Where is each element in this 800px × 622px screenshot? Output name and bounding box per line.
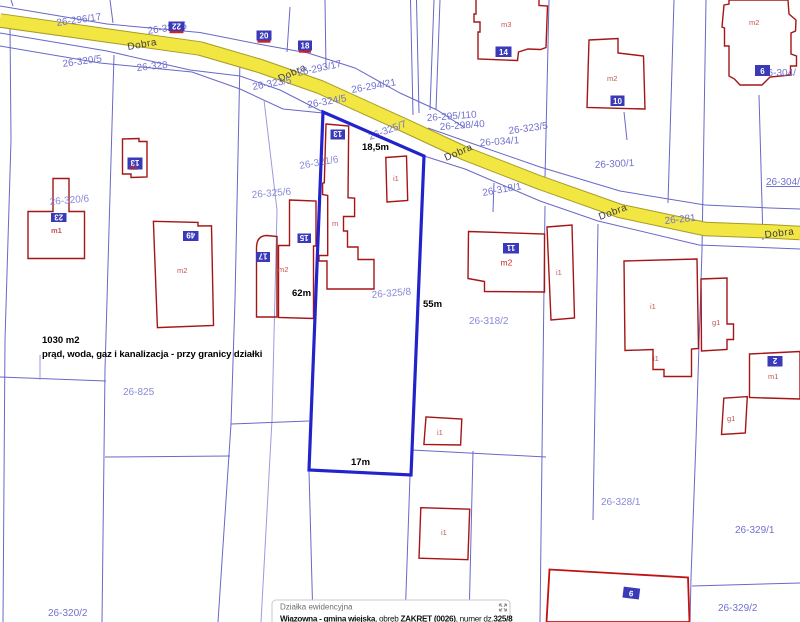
svg-text:49: 49 [186, 231, 195, 240]
svg-text:10: 10 [613, 97, 622, 106]
svg-text:i1: i1 [653, 354, 659, 363]
svg-text:1030 m2: 1030 m2 [42, 335, 80, 346]
svg-text:22: 22 [172, 21, 181, 30]
svg-text:i1: i1 [437, 428, 443, 437]
svg-text:23: 23 [54, 213, 63, 222]
svg-text:13: 13 [333, 129, 342, 138]
svg-text:18,5m: 18,5m [362, 142, 389, 153]
svg-text:26-329/2: 26-329/2 [718, 603, 758, 614]
svg-text:26-318/2: 26-318/2 [469, 316, 509, 327]
svg-text:Działka ewidencyjna: Działka ewidencyjna [280, 603, 353, 612]
svg-text:i1: i1 [556, 268, 562, 277]
svg-text:i1: i1 [650, 302, 656, 311]
svg-text:26-328/1: 26-328/1 [601, 497, 641, 508]
svg-text:m3: m3 [501, 20, 511, 29]
svg-text:17m: 17m [351, 457, 370, 468]
svg-text:m1: m1 [768, 372, 778, 381]
svg-text:Wiązowna - gmina wiejska, obrę: Wiązowna - gmina wiejska, obręb ZAKRĘT (… [280, 615, 513, 622]
svg-text:62m: 62m [292, 288, 311, 299]
svg-text:26-329/1: 26-329/1 [735, 525, 775, 536]
svg-text:17: 17 [258, 252, 267, 261]
svg-text:26-825: 26-825 [123, 387, 155, 398]
svg-text:m2: m2 [607, 74, 617, 83]
svg-text:26-320/2: 26-320/2 [48, 608, 88, 619]
svg-text:11: 11 [506, 243, 515, 252]
svg-text:m2: m2 [278, 265, 288, 274]
svg-text:i1: i1 [393, 174, 399, 183]
svg-text:15: 15 [299, 233, 308, 242]
svg-text:m1: m1 [51, 226, 62, 235]
svg-text:g1: g1 [727, 414, 735, 423]
svg-text:14: 14 [499, 48, 508, 57]
svg-text:20: 20 [260, 32, 269, 41]
svg-text:m: m [130, 163, 137, 172]
svg-text:prąd, woda, gaz i kanalizacja: prąd, woda, gaz i kanalizacja - przy gra… [42, 349, 262, 360]
svg-text:m: m [332, 219, 338, 228]
svg-text:18: 18 [301, 42, 310, 51]
svg-text:26-304/: 26-304/ [766, 177, 800, 188]
svg-text:m2: m2 [501, 258, 513, 268]
svg-text:g1: g1 [712, 318, 720, 327]
svg-text:m2: m2 [749, 18, 759, 27]
svg-text:55m: 55m [423, 299, 442, 310]
svg-text:6: 6 [760, 67, 765, 76]
svg-text:i1: i1 [441, 528, 447, 537]
svg-text:2: 2 [772, 356, 777, 365]
svg-text:m2: m2 [177, 266, 187, 275]
svg-text:26-300/1: 26-300/1 [595, 158, 635, 171]
